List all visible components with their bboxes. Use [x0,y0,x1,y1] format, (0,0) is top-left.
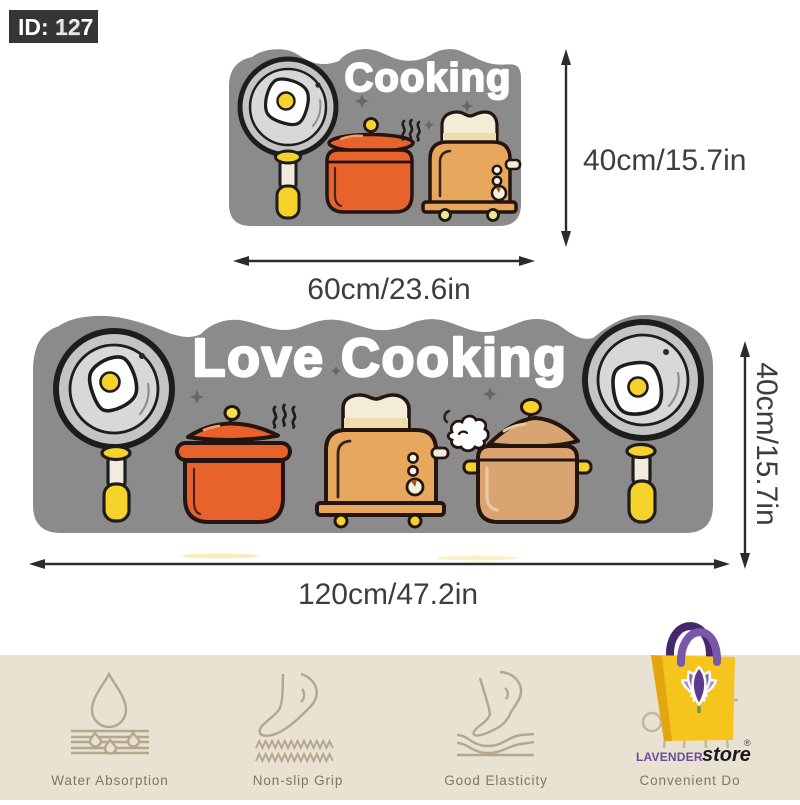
svg-text:®: ® [744,738,751,748]
svg-text:40cm/15.7in: 40cm/15.7in [583,144,746,177]
svg-text:Good Elasticity: Good Elasticity [444,773,548,788]
svg-text:40cm/15.7in: 40cm/15.7in [750,362,783,525]
svg-text:Non-slip Grip: Non-slip Grip [253,773,343,788]
svg-text:Convenient Do: Convenient Do [639,773,740,788]
svg-text:60cm/23.6in: 60cm/23.6in [307,273,470,306]
svg-text:120cm/47.2in: 120cm/47.2in [298,578,478,611]
svg-text:Water Absorption: Water Absorption [51,773,168,788]
svg-text:LAVENDER: LAVENDER [636,750,703,764]
svg-text:Love Cooking: Love Cooking [192,328,567,388]
svg-text:12: 12 [56,16,80,41]
svg-text:Cooking: Cooking [345,56,512,100]
